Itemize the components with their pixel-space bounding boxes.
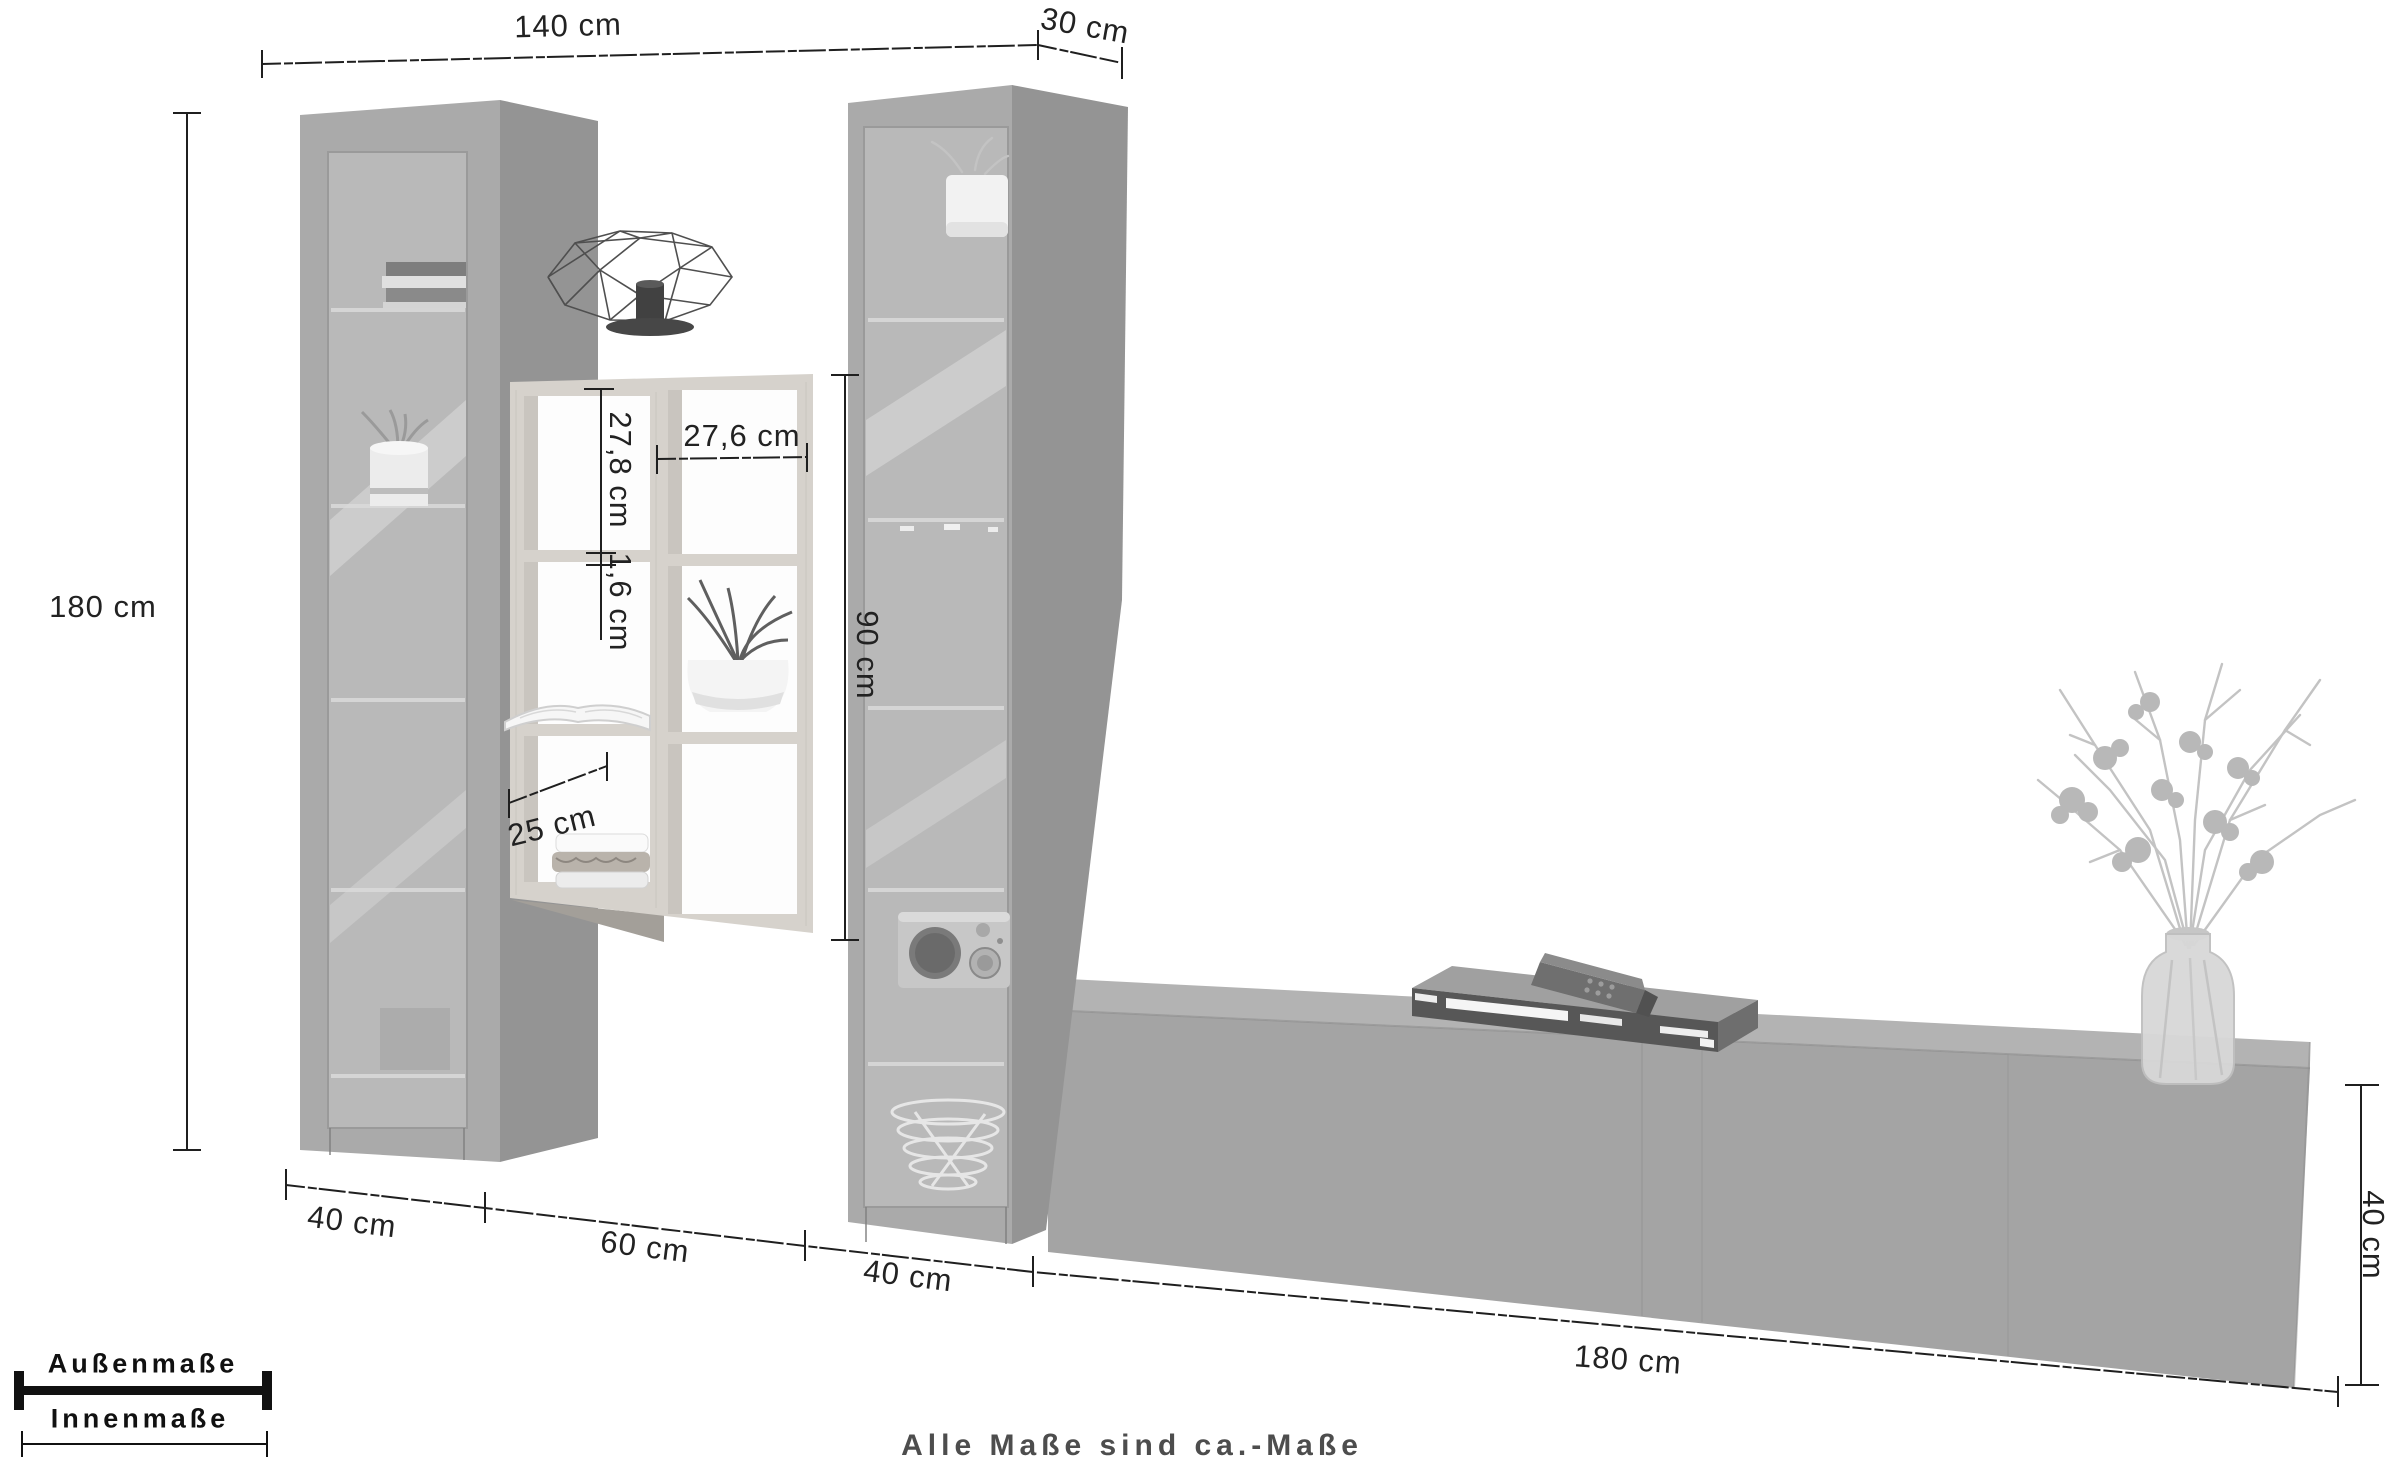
glass-shelf	[868, 518, 1004, 522]
vase	[2142, 927, 2234, 1084]
dim-line-top-width	[262, 30, 1038, 78]
dim-label-cell-height: 27,8 cm	[602, 411, 638, 528]
right-vitrine-glass-door	[864, 127, 1008, 1207]
vase-with-branches	[2038, 664, 2355, 1084]
glass-shelf	[868, 1062, 1004, 1066]
dim-label-shelf-height: 90 cm	[849, 610, 885, 699]
textiles	[552, 834, 650, 888]
radio-knob	[976, 923, 990, 937]
dim-line-height-left	[173, 113, 201, 1150]
legend-outer-line	[18, 1386, 268, 1395]
glass-shelf	[868, 318, 1004, 322]
glass-shelf	[331, 698, 465, 702]
books	[382, 262, 466, 308]
dim-line-top-depth	[1038, 45, 1122, 79]
glass-shelf	[331, 1074, 465, 1078]
glass-shelf	[331, 888, 465, 892]
lamp-base	[606, 318, 694, 336]
dim-label-top-width: 140 cm	[514, 7, 623, 46]
glass-shelf	[868, 888, 1004, 892]
speaker-cylinder	[370, 441, 428, 506]
diagram-artwork	[0, 0, 2400, 1474]
glass-shelf	[868, 706, 1004, 710]
legend-outer-label: Außenmaße	[48, 1349, 239, 1380]
dim-label-lowboard-height: 40 cm	[2355, 1190, 2391, 1279]
caption-text: Alle Maße sind ca.-Maße	[901, 1429, 1363, 1463]
dim-label-shelf-thickness: 1,6 cm	[602, 552, 638, 651]
glass-shelf	[331, 308, 465, 312]
legend-inner-label: Innenmaße	[51, 1404, 230, 1435]
radio	[898, 912, 1010, 988]
dim-label-bottom-w4: 180 cm	[1573, 1338, 1683, 1381]
furniture-dimension-diagram: 140 cm 30 cm 180 cm 27,8 cm 27,6 cm 1,6 …	[0, 0, 2400, 1474]
dim-label-cell-width: 27,6 cm	[683, 418, 800, 454]
shelf-item	[380, 1008, 450, 1070]
dim-label-height-left: 180 cm	[49, 589, 157, 625]
